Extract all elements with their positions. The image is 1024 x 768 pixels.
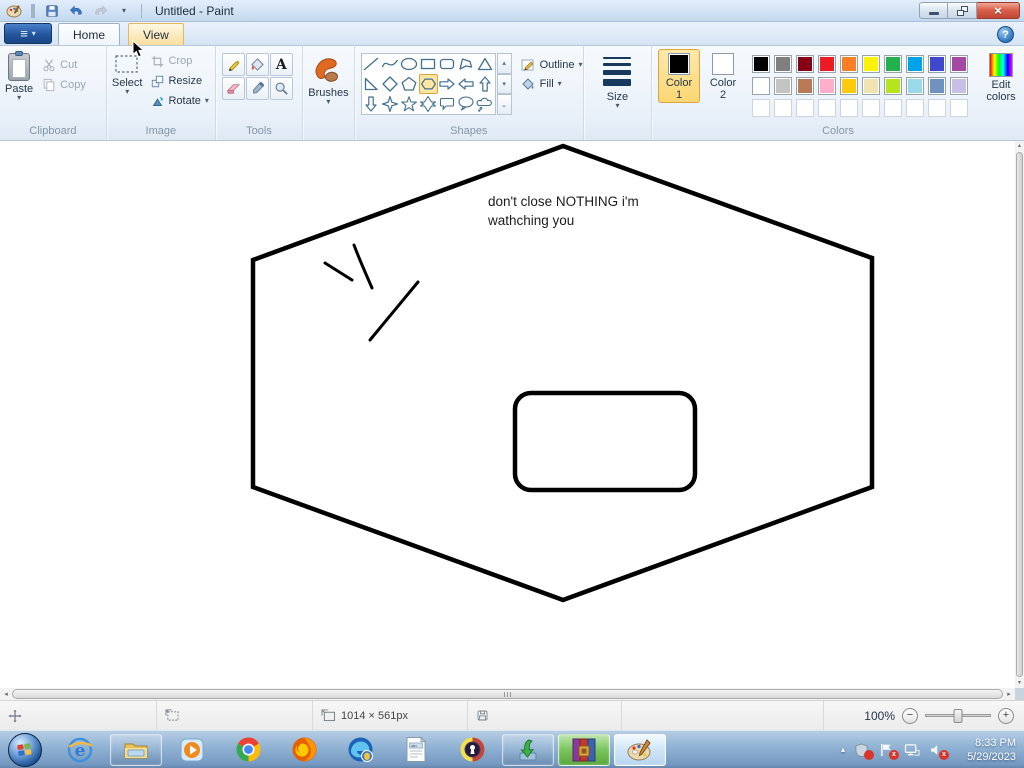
shapes-scroll-down[interactable]: ▾	[497, 74, 512, 95]
download-manager-button[interactable]	[502, 734, 554, 766]
shape-rectangle[interactable]	[419, 54, 438, 74]
color-swatch-empty[interactable]	[818, 99, 836, 117]
cut-button[interactable]: Cut	[38, 55, 90, 75]
show-hidden-icons-button[interactable]: ▴	[841, 745, 845, 754]
ribbon: Paste ▾ Cut Copy Clipboard Select ▾	[0, 46, 1024, 141]
taskbar-item-tor-browser[interactable]	[444, 733, 500, 767]
scroll-grip	[504, 692, 512, 697]
tor-browser-icon	[459, 736, 486, 763]
taskbar-item-windows-explorer[interactable]	[108, 733, 164, 767]
image-size-value: 1014 × 561px	[341, 710, 408, 722]
image-size-cell: 1014 × 561px	[313, 701, 468, 730]
close-icon: ×	[994, 3, 1002, 18]
ribbon-tab-row: ≡ ▾ Home View	[0, 22, 1024, 46]
color-swatch[interactable]	[840, 77, 858, 95]
download-arrow-icon	[515, 738, 541, 762]
color-swatch[interactable]	[906, 77, 924, 95]
color-swatch-empty[interactable]	[950, 99, 968, 117]
color-swatch[interactable]	[862, 77, 880, 95]
group-size: Size ▾	[584, 46, 652, 140]
paste-icon	[8, 53, 30, 81]
size-icon	[603, 57, 631, 86]
color-swatch-empty[interactable]	[862, 99, 880, 117]
vertical-scroll-thumb[interactable]	[1016, 152, 1023, 677]
taskbar-item-firefox[interactable]	[276, 733, 332, 767]
drawn-rounded-rectangle	[515, 393, 695, 490]
group-label-image: Image	[107, 125, 215, 140]
color-swatch[interactable]	[774, 55, 792, 73]
text-tool[interactable]: A	[270, 53, 293, 76]
shape-up-arrow[interactable]	[476, 74, 495, 94]
rotate-icon	[151, 95, 164, 108]
taskbar-item-edge-browser[interactable]	[332, 733, 388, 767]
shapes-scroll-up[interactable]: ▴	[497, 53, 512, 74]
group-colors: Color 1 Color 2 Edit colors Colors	[652, 46, 1024, 140]
color-swatch-empty[interactable]	[774, 99, 792, 117]
eraser-tool[interactable]	[222, 77, 245, 100]
image-size-icon	[321, 709, 336, 722]
tab-home[interactable]: Home	[58, 23, 120, 45]
cursor-position-cell	[0, 701, 157, 730]
outline-button[interactable]: Outline▾	[520, 57, 583, 73]
group-label-colors: Colors	[652, 125, 1024, 140]
shape-polygon[interactable]	[457, 54, 476, 74]
color-swatch[interactable]	[906, 55, 924, 73]
quick-access-toolbar: ▾	[0, 2, 145, 20]
shape-five-point-star[interactable]	[400, 94, 419, 114]
shape-right-triangle[interactable]	[362, 74, 381, 94]
status-bar: 1014 × 561px 100% − +	[0, 700, 1024, 730]
notepad-icon: abc	[404, 736, 428, 763]
resize-button[interactable]: Resize	[147, 71, 212, 91]
brushes-button[interactable]: Brushes ▾	[303, 49, 353, 107]
canvas-text-line1: don't close NOTHING i'm	[488, 194, 639, 209]
group-shapes: ▴ ▾ ⌄ Outline▾ Fill▾ Shapes	[355, 46, 584, 140]
color-swatch[interactable]	[928, 77, 946, 95]
taskbar-item-chrome[interactable]	[220, 733, 276, 767]
scroll-right-arrow[interactable]: ▸	[1003, 690, 1015, 698]
rotate-button[interactable]: Rotate ▾	[147, 91, 212, 111]
taskbar: e abc ▴	[0, 730, 1024, 768]
firefox-icon	[291, 736, 318, 763]
crop-icon	[151, 55, 164, 68]
color-swatch[interactable]	[752, 55, 770, 73]
color-swatch[interactable]	[884, 77, 902, 95]
network-icon[interactable]	[904, 743, 920, 757]
mouse-cursor	[132, 40, 144, 58]
taskbar-item-winrar[interactable]	[556, 733, 612, 767]
save-button[interactable]	[42, 2, 62, 20]
volume-muted-icon[interactable]: x	[929, 743, 945, 757]
size-button[interactable]: Size ▾	[598, 49, 636, 111]
shape-triangle[interactable]	[476, 54, 495, 74]
edit-colors-button[interactable]: Edit colors	[978, 49, 1024, 105]
shape-oval[interactable]	[400, 54, 419, 74]
selection-size-cell	[157, 701, 313, 730]
color1-button[interactable]: Color 1	[658, 49, 700, 103]
tools-grid: A	[222, 53, 293, 100]
fill-button[interactable]: Fill▾	[520, 76, 583, 92]
shape-line[interactable]	[362, 54, 381, 74]
file-size-icon	[476, 709, 489, 722]
shapes-gallery-expand[interactable]: ⌄	[497, 94, 512, 115]
shape-rounded-rectangle[interactable]	[438, 54, 457, 74]
paint-taskbar-icon	[626, 738, 654, 762]
zoom-in-button[interactable]: +	[998, 708, 1014, 724]
undo-button[interactable]	[66, 2, 86, 20]
color-swatch[interactable]	[796, 77, 814, 95]
color-swatch[interactable]	[884, 55, 902, 73]
group-image: Select ▾ Crop Resize Rotate ▾ Image	[107, 46, 216, 140]
color-swatch-empty[interactable]	[928, 99, 946, 117]
scroll-up-arrow[interactable]: ▴	[1018, 141, 1021, 151]
color-swatch-empty[interactable]	[840, 99, 858, 117]
pencil-icon	[226, 57, 241, 72]
zoom-slider-thumb[interactable]	[954, 709, 963, 723]
color-swatch[interactable]	[840, 55, 858, 73]
pencil-tool[interactable]	[222, 53, 245, 76]
action-center-flag-icon[interactable]: x	[879, 743, 895, 757]
color-swatch[interactable]	[950, 55, 968, 73]
shape-left-arrow[interactable]	[457, 74, 476, 94]
internet-explorer-icon: e	[66, 736, 94, 764]
group-label-clipboard: Clipboard	[0, 125, 106, 140]
restore-icon	[957, 6, 968, 16]
pencil-stroke-2	[354, 245, 372, 288]
minimize-button[interactable]	[919, 2, 948, 19]
fill-bucket-icon	[250, 57, 265, 72]
help-button[interactable]: ?	[997, 26, 1014, 43]
shape-four-point-star[interactable]	[381, 94, 400, 114]
divider	[141, 4, 142, 18]
paint-app-icon[interactable]	[4, 2, 24, 20]
folder-icon	[123, 739, 149, 761]
shapes-gallery	[361, 53, 496, 115]
resize-icon	[151, 75, 164, 88]
scroll-left-arrow[interactable]: ◂	[0, 690, 12, 698]
shape-curve[interactable]	[381, 54, 400, 74]
shape-six-point-star[interactable]	[419, 94, 438, 114]
group-label-tools: Tools	[216, 125, 302, 140]
window-controls: ×	[919, 2, 1020, 19]
crop-button[interactable]: Crop	[147, 51, 212, 71]
restore-button[interactable]	[948, 2, 977, 19]
volume-muted-badge: x	[939, 750, 949, 760]
svg-text:abc: abc	[411, 744, 417, 748]
minimize-icon	[929, 12, 939, 15]
status-spacer	[622, 701, 824, 730]
windows-explorer-button[interactable]	[110, 734, 162, 766]
paint-menu-button[interactable]: ≡ ▾	[4, 23, 52, 44]
brush-icon	[311, 53, 345, 85]
pencil-stroke-3	[370, 282, 418, 340]
color-palette	[752, 55, 970, 119]
winrar-button[interactable]	[558, 734, 610, 766]
shape-right-arrow[interactable]	[438, 74, 457, 94]
magnifier-icon	[274, 81, 289, 96]
taskbar-item-paint[interactable]	[612, 733, 668, 767]
color-swatch[interactable]	[928, 55, 946, 73]
zoom-level: 100%	[864, 709, 895, 723]
color2-swatch	[712, 53, 734, 75]
tray-update-badge	[864, 750, 874, 760]
color-picker-tool[interactable]	[246, 77, 269, 100]
scroll-down-arrow[interactable]: ▾	[1018, 678, 1021, 688]
taskbar-item-internet-explorer[interactable]: e	[52, 733, 108, 767]
scissors-icon	[42, 58, 56, 72]
clock-time: 8:33 PM	[954, 736, 1016, 750]
canvas-text-line2: wathching you	[487, 213, 574, 228]
windows-logo-icon	[17, 743, 34, 758]
pencil-stroke-1	[325, 263, 352, 280]
horizontal-scroll-thumb[interactable]	[12, 689, 1003, 699]
canvas-drawing: don't close NOTHING i'm wathching you	[0, 141, 1015, 688]
color-swatch-empty[interactable]	[796, 99, 814, 117]
winrar-icon	[571, 737, 597, 763]
copy-button[interactable]: Copy	[38, 75, 90, 95]
color-swatch[interactable]	[818, 55, 836, 73]
taskbar-item-media-player[interactable]	[164, 733, 220, 767]
redo-button[interactable]	[90, 2, 110, 20]
shape-down-arrow[interactable]	[362, 94, 381, 114]
color-swatch[interactable]	[950, 77, 968, 95]
divider	[31, 4, 35, 18]
paint-button[interactable]	[614, 734, 666, 766]
drawing-canvas[interactable]: don't close NOTHING i'm wathching you	[0, 141, 1015, 688]
horizontal-scrollbar[interactable]: ◂ ▸	[0, 688, 1015, 700]
color1-swatch	[668, 53, 690, 75]
window-title: Untitled - Paint	[155, 4, 234, 18]
shape-rounded-callout[interactable]	[438, 94, 457, 114]
taskbar-item-notepad[interactable]: abc	[388, 733, 444, 767]
media-player-icon	[179, 737, 205, 763]
canvas-area: don't close NOTHING i'm wathching you ▴ …	[0, 141, 1024, 700]
title-bar: ▾ Untitled - Paint ×	[0, 0, 1024, 22]
eyedropper-icon	[250, 81, 265, 96]
copy-icon	[42, 78, 56, 92]
fill-tool[interactable]	[246, 53, 269, 76]
fill-icon	[520, 76, 536, 92]
group-clipboard: Paste ▾ Cut Copy Clipboard	[0, 46, 107, 140]
system-tray: ▴ x x 8:33 PM 5/29/2023	[841, 736, 1024, 764]
close-button[interactable]: ×	[977, 2, 1020, 19]
file-size-cell	[468, 701, 622, 730]
selection-size-icon	[165, 709, 180, 722]
customize-qat-dropdown[interactable]: ▾	[114, 2, 134, 20]
color-swatch[interactable]	[796, 55, 814, 73]
color-swatch[interactable]	[774, 77, 792, 95]
eraser-icon	[226, 81, 241, 96]
color-swatch[interactable]	[862, 55, 880, 73]
cursor-position-icon	[8, 709, 22, 723]
menu-list-icon: ≡	[20, 27, 28, 40]
zoom-slider[interactable]	[925, 714, 991, 717]
shape-hexagon[interactable]	[419, 74, 438, 94]
zoom-out-button[interactable]: −	[902, 708, 918, 724]
shape-pentagon[interactable]	[400, 74, 419, 94]
start-button[interactable]	[8, 733, 42, 767]
shapes-scrollbar: ▴ ▾ ⌄	[497, 53, 512, 115]
screen: { "window": { "title": "Untitled - Paint…	[0, 0, 1024, 768]
color-swatch-empty[interactable]	[906, 99, 924, 117]
zoom-controls: 100% − +	[824, 701, 1024, 730]
shape-cloud-callout[interactable]	[476, 94, 495, 114]
group-label-shapes: Shapes	[355, 125, 583, 140]
group-tools: A Tools	[216, 46, 303, 140]
color2-button[interactable]: Color 2	[702, 49, 744, 103]
edge-browser-icon	[347, 736, 374, 763]
taskbar-clock[interactable]: 8:33 PM 5/29/2023	[954, 736, 1016, 764]
color-swatch-empty[interactable]	[884, 99, 902, 117]
color-swatch-empty[interactable]	[752, 99, 770, 117]
paste-button[interactable]: Paste ▾	[0, 49, 38, 103]
action-center-badge: x	[889, 750, 899, 760]
edit-colors-icon	[989, 53, 1013, 77]
shape-oval-callout[interactable]	[457, 94, 476, 114]
chrome-icon	[235, 736, 262, 763]
outline-icon	[520, 57, 536, 73]
text-tool-icon: A	[276, 58, 287, 72]
color-swatch[interactable]	[818, 77, 836, 95]
group-brushes: Brushes ▾	[303, 46, 354, 140]
taskbar-item-download-manager[interactable]	[500, 733, 556, 767]
color-swatch[interactable]	[752, 77, 770, 95]
magnifier-tool[interactable]	[270, 77, 293, 100]
tray-update-icon[interactable]	[854, 743, 870, 757]
vertical-scrollbar[interactable]: ▴ ▾	[1015, 141, 1024, 688]
clock-date: 5/29/2023	[954, 750, 1016, 764]
shape-diamond[interactable]	[381, 74, 400, 94]
